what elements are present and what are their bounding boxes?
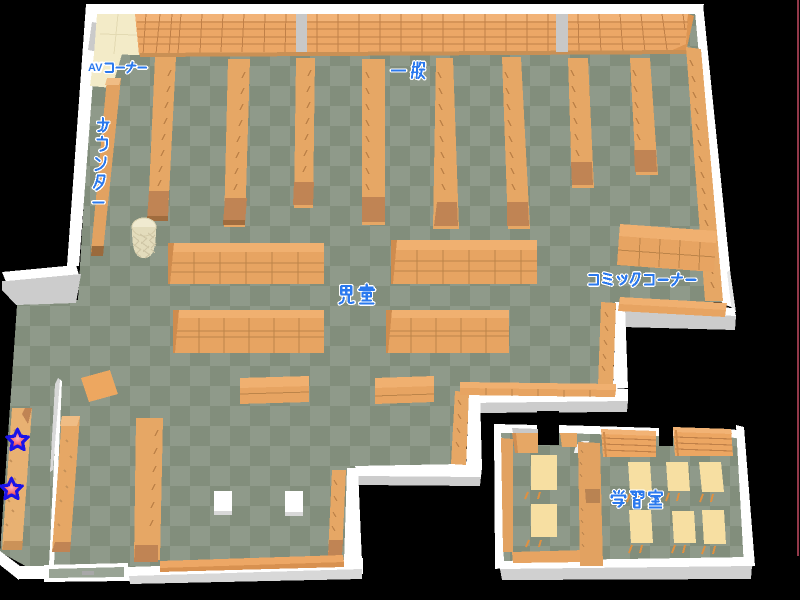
svg-text:AV: AV [88, 62, 103, 74]
